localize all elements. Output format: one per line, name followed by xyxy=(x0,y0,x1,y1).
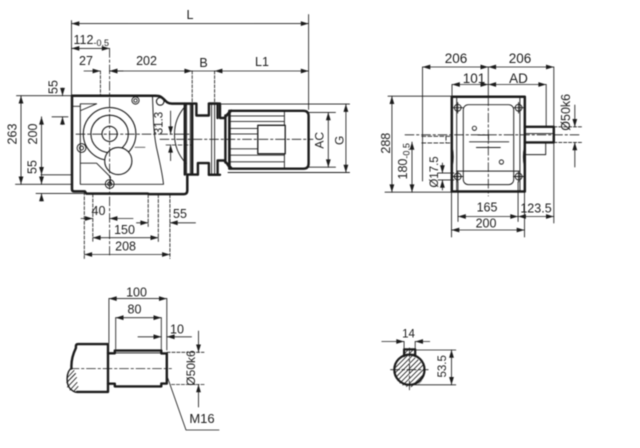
svg-text:27: 27 xyxy=(79,54,93,68)
svg-text:263: 263 xyxy=(6,124,20,145)
svg-text:200: 200 xyxy=(476,216,497,230)
svg-text:206: 206 xyxy=(445,51,468,66)
svg-text:208: 208 xyxy=(115,239,136,253)
svg-text:150: 150 xyxy=(114,223,135,237)
svg-text:AC: AC xyxy=(312,132,326,149)
svg-text:112: 112 xyxy=(74,33,94,47)
svg-text:55: 55 xyxy=(47,80,61,94)
svg-text:80: 80 xyxy=(128,303,142,317)
svg-text:Ø50k6: Ø50k6 xyxy=(184,350,198,386)
svg-text:202: 202 xyxy=(136,54,157,68)
svg-text:206: 206 xyxy=(509,51,532,66)
svg-text:165: 165 xyxy=(477,201,498,215)
svg-text:40: 40 xyxy=(92,204,106,218)
svg-text:55: 55 xyxy=(173,207,187,221)
svg-text:200: 200 xyxy=(26,124,40,145)
svg-text:101: 101 xyxy=(463,71,486,86)
svg-text:288: 288 xyxy=(379,133,393,154)
svg-text:10: 10 xyxy=(170,322,184,336)
svg-text:AD: AD xyxy=(509,71,528,86)
svg-text:Ø17.5: Ø17.5 xyxy=(429,156,441,187)
svg-text:55: 55 xyxy=(26,160,40,174)
svg-text:M16: M16 xyxy=(189,411,214,426)
svg-text:L1: L1 xyxy=(255,55,269,69)
svg-text:123.5: 123.5 xyxy=(520,202,551,216)
svg-text:14: 14 xyxy=(402,328,415,340)
svg-text:B: B xyxy=(199,56,207,70)
svg-text:100: 100 xyxy=(126,285,147,299)
svg-text:L: L xyxy=(187,8,194,22)
svg-text:31.3: 31.3 xyxy=(154,112,166,134)
svg-text:Ø50k6: Ø50k6 xyxy=(559,94,573,131)
svg-text:-0.5: -0.5 xyxy=(94,38,110,48)
svg-text:G: G xyxy=(333,136,347,145)
svg-text:53.5: 53.5 xyxy=(437,355,449,377)
